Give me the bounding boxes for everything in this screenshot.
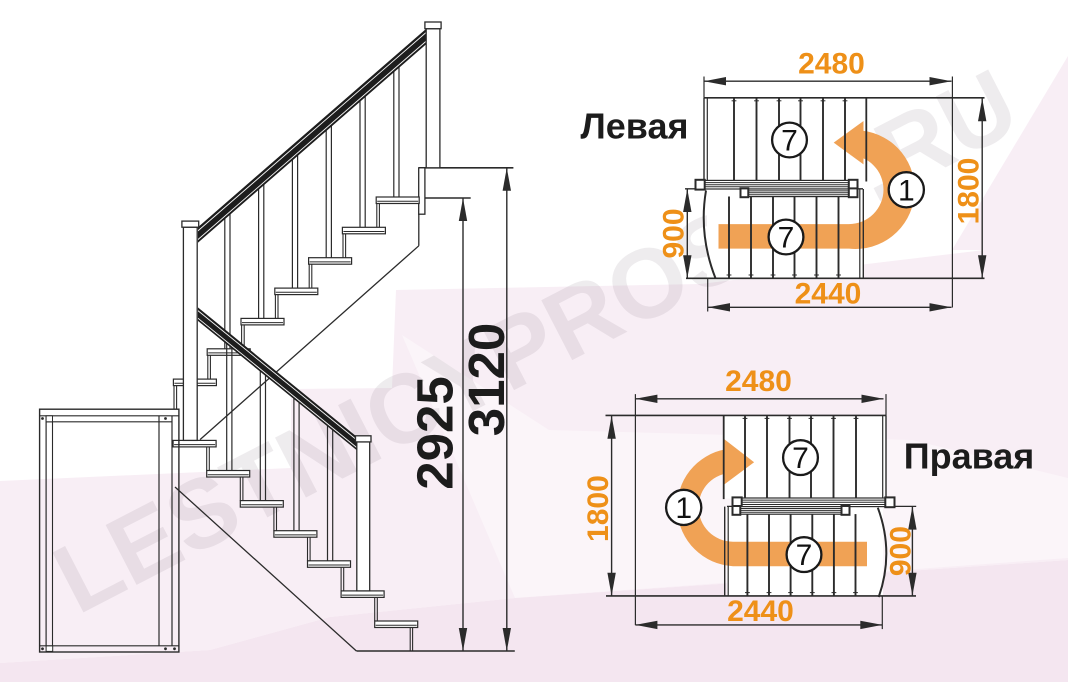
svg-text:Правая: Правая [904, 436, 1035, 477]
svg-text:2480: 2480 [725, 365, 792, 398]
svg-text:3120: 3120 [458, 323, 515, 436]
svg-text:7: 7 [778, 222, 795, 255]
svg-text:7: 7 [781, 125, 798, 158]
svg-text:2480: 2480 [798, 48, 865, 81]
svg-text:2440: 2440 [727, 595, 794, 628]
svg-text:1: 1 [675, 492, 692, 525]
svg-text:900: 900 [658, 208, 691, 258]
svg-text:7: 7 [796, 539, 813, 572]
svg-text:2440: 2440 [795, 277, 862, 310]
svg-text:Левая: Левая [581, 105, 689, 146]
svg-text:1: 1 [898, 174, 915, 207]
svg-text:2925: 2925 [407, 376, 464, 489]
svg-text:1800: 1800 [953, 158, 986, 225]
svg-text:900: 900 [885, 526, 918, 576]
svg-text:7: 7 [792, 442, 809, 475]
svg-text:1800: 1800 [582, 475, 615, 542]
